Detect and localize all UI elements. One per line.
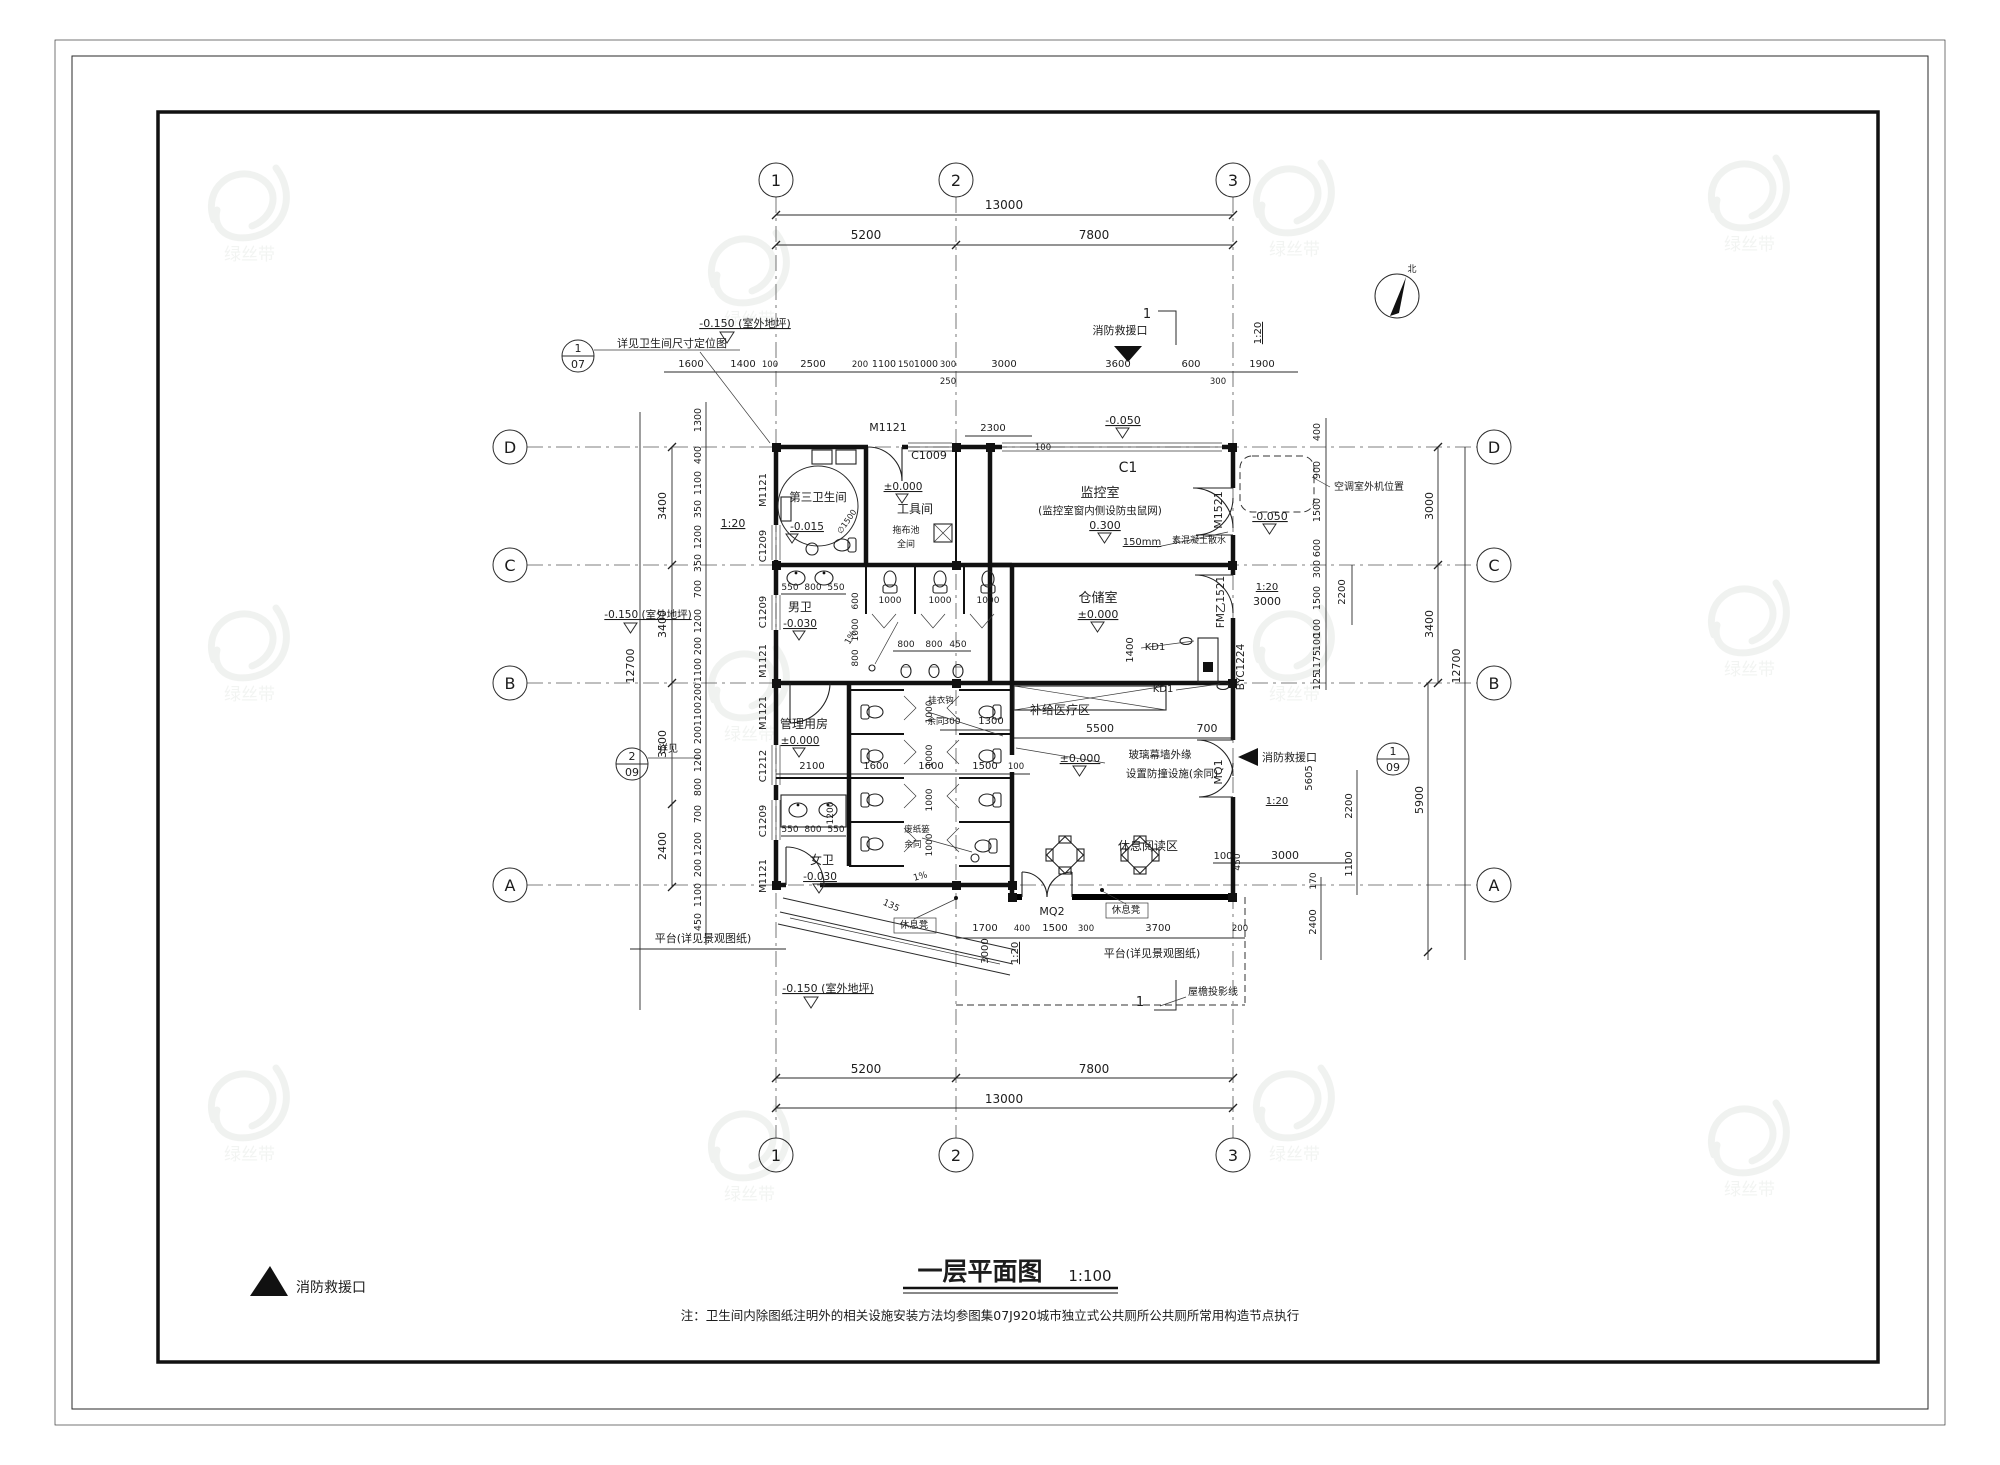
level-management: ±0.000 <box>781 735 820 747</box>
detail-1-07-note: 详见卫生间尺寸定位图 <box>617 336 727 350</box>
dim-right-450: 450 <box>1233 853 1243 870</box>
dim-top-sub: 250 <box>940 377 956 387</box>
detail-2-09-num: 2 <box>629 750 636 763</box>
dim-right-chain: 1500 <box>1312 498 1323 522</box>
level-outdoor-bottom: -0.150 (室外地坪) <box>782 981 874 995</box>
level--0050-right: -0.050 <box>1252 510 1287 523</box>
dim-urinal: 800 <box>897 640 914 650</box>
dim-right-chain: 600 <box>1312 539 1323 557</box>
dim-left-chain: 1100 <box>693 471 704 495</box>
dim-left-chain: 350 <box>693 554 704 572</box>
dim-right-3400: 3400 <box>1423 610 1436 638</box>
dim-top-chain: 600 <box>1181 359 1200 370</box>
dim-top-chain: 200 <box>852 360 868 370</box>
dim-women-stall: 1000 <box>925 744 935 767</box>
dim-left-3400a: 3400 <box>656 492 669 520</box>
dim-left-2400: 2400 <box>656 832 669 860</box>
grid-bubble-A-left: A <box>505 876 516 895</box>
dim-2300: 2300 <box>980 423 1005 434</box>
wastebin-note-1: 废纸篓 <box>904 824 930 835</box>
dim-right-3000: 3000 <box>1423 492 1436 520</box>
level-outdoor-top: -0.150 (室外地坪) <box>699 316 791 330</box>
dim-platform: 400 <box>1014 924 1030 934</box>
door-M1521: M1521 <box>1212 491 1225 529</box>
dim-1300: 1300 <box>978 716 1003 727</box>
platform-note-right: 平台(详见景观图纸) <box>1104 946 1201 960</box>
drawing-title: 一层平面图 <box>917 1257 1042 1286</box>
dim-men-stall: 1000 <box>879 596 902 606</box>
dim-bottom-total: 13000 <box>985 1092 1023 1106</box>
dim-right-2200a: 2200 <box>1337 579 1348 604</box>
grid-bubble-2-bottom: 2 <box>951 1146 961 1165</box>
wall-tag: C1209 <box>758 530 769 562</box>
dim-top-chain: 2500 <box>800 359 825 370</box>
dim-100: 100 <box>1035 443 1051 453</box>
dim-left-chain: 400 <box>693 446 704 464</box>
room-women: 女卫 <box>810 852 834 867</box>
dim-women-stall: 1000 <box>925 788 935 811</box>
dim-bottom-5200: 5200 <box>851 1062 882 1076</box>
drawing-scale: 1:100 <box>1068 1267 1111 1285</box>
dim-urinal: 800 <box>925 640 942 650</box>
dim-left-chain: 700 <box>693 805 704 823</box>
room-third-toilet: 第三卫生间 <box>789 490 847 504</box>
dim-men-sink: 550 <box>827 583 844 593</box>
dim-men-sink: 550 <box>781 583 798 593</box>
room-storage: 仓储室 <box>1078 590 1117 606</box>
floor-plan-sheet: { "content": { "title": "一层平面图", "scale"… <box>0 0 2000 1465</box>
dim-right-chain: 300 <box>1312 560 1323 578</box>
mop-sink-note-2: 全间 <box>897 538 915 550</box>
section-mark-1-top: 1 <box>1143 307 1151 322</box>
dim-right-1100: 1100 <box>1344 851 1355 876</box>
dim-top-7800: 7800 <box>1079 228 1110 242</box>
dim-top-chain: 1600 <box>678 359 703 370</box>
dim-hall-100: 100 <box>1213 851 1232 862</box>
dim-left-chain: 1200 <box>693 525 704 549</box>
level-women: -0.030 <box>803 871 837 883</box>
dim-top-chain: 1400 <box>730 359 755 370</box>
window-BYC1224: BYC1224 <box>1235 643 1247 690</box>
grid-bubble-B-left: B <box>505 674 516 693</box>
wall-tag: C1212 <box>758 750 769 782</box>
dim-women-sink: 800 <box>804 825 821 835</box>
slope-1-20-top: 1:20 <box>1253 322 1264 344</box>
apron-150mm: 150mm <box>1123 537 1162 548</box>
dim-hall-3000: 3000 <box>1271 849 1299 862</box>
dim-right-chain: 125 <box>1312 672 1323 690</box>
wastebin-note-2: 余同 <box>904 839 921 850</box>
detail-1-07-sheet: 07 <box>571 358 585 371</box>
bench-note-hall: 休息凳 <box>1112 904 1141 916</box>
door-FMZ1521: FM乙1521 <box>1215 576 1227 628</box>
dim-right-170: 170 <box>1309 872 1319 889</box>
apron-note: 素混凝土散水 <box>1172 534 1226 546</box>
room-supply-medical: 补给医疗区 <box>1030 703 1090 717</box>
dim-women-sink: 550 <box>827 825 844 835</box>
fire-rescue-top-label: 消防救援口 <box>1093 323 1148 337</box>
door-MQ2: MQ2 <box>1039 905 1064 918</box>
dim-ramp-135: 135 <box>881 898 901 914</box>
dim-left-chain: 1100 <box>693 883 704 907</box>
detail-1-09-sheet: 09 <box>1386 761 1400 774</box>
slope-1-20-mq1: 1:20 <box>1266 796 1288 807</box>
grid-bubble-D-left: D <box>504 438 516 457</box>
slope-1-20-ramp: 1:20 <box>1010 942 1021 964</box>
grid-bubble-1-bottom: 1 <box>771 1146 781 1165</box>
level-men: -0.030 <box>783 618 817 630</box>
floor-plan-drawing: 绿丝带 <box>0 0 2000 1465</box>
grid-axes <box>493 163 1511 1172</box>
grid-bubble-C-right: C <box>1488 556 1499 575</box>
dim-platform: 3700 <box>1145 923 1170 934</box>
level-outdoor-left: -0.150 (室外地坪) <box>604 608 691 621</box>
grid-bubble-A-right: A <box>1489 876 1500 895</box>
level-tool: ±0.000 <box>884 481 923 493</box>
dim-bottom-7800: 7800 <box>1079 1062 1110 1076</box>
dim-left-chain: 1200 <box>693 832 704 856</box>
slope-1pct-ramp: 1% <box>912 870 929 883</box>
fire-rescue-legend-label: 消防救援口 <box>296 1280 366 1296</box>
dim-women-stall: 1000 <box>925 833 935 856</box>
dim-men-stall: 1000 <box>977 596 1000 606</box>
dim-platform: 1700 <box>972 923 997 934</box>
dim-men-v: 600 <box>851 592 861 609</box>
dim-mgmt-chain: 1500 <box>972 761 997 772</box>
dim-mgmt-chain: 100 <box>1008 762 1024 772</box>
grid-bubble-3-top: 3 <box>1228 171 1238 190</box>
dim-right-2400: 2400 <box>1308 909 1319 934</box>
dim-top-chain: 150 <box>898 360 914 370</box>
dim-left-chain: 1100 <box>693 702 704 726</box>
detail-1-09-num: 1 <box>1390 745 1397 758</box>
drawing-note: 注：卫生间内除图纸注明外的相关设施安装方法均参图集07J920城市独立式公共厕所… <box>681 1308 1299 1323</box>
coathook-note-1: 挂衣钩 <box>928 695 954 706</box>
room-management: 管理用房 <box>780 716 828 731</box>
dim-300: 300 <box>943 717 960 727</box>
dim-right-total: 12700 <box>1450 649 1463 684</box>
dim-700: 700 <box>1197 722 1218 735</box>
sheet-border <box>55 40 1945 1425</box>
wall-tag: M1121 <box>758 859 769 893</box>
room-monitor-note: (监控室窗内侧设防虫鼠网) <box>1038 504 1162 517</box>
device-KD1-a: KD1 <box>1145 642 1166 653</box>
wall-tag: M1121 <box>758 644 769 678</box>
north-arrow-icon <box>1375 274 1419 318</box>
dim-left-chain: 200 <box>693 683 704 701</box>
bench-note-ramp: 休息凳 <box>900 919 929 931</box>
dim-right-chain: 100 <box>1312 633 1323 651</box>
dim-right-chain: 1500 <box>1312 586 1323 610</box>
slope-1-20-ramp-east: 1:20 <box>1256 582 1278 593</box>
dim-right-chain: 1175 <box>1312 650 1323 674</box>
level-third-toilet: -0.015 <box>790 521 824 533</box>
slope-1-20-left: 1:20 <box>721 517 746 530</box>
dim-top-chain: 3600 <box>1105 359 1130 370</box>
dim-left-chain: 1100 <box>693 658 704 682</box>
device-KD1-b: KD1 <box>1153 684 1174 695</box>
grid-bubble-C-left: C <box>504 556 515 575</box>
dim-platform: 300 <box>1078 924 1094 934</box>
dim-right-chain: 400 <box>1312 423 1323 441</box>
wall-tag: C1209 <box>758 805 769 837</box>
fire-rescue-legend-icon <box>250 1266 288 1296</box>
dim-right-5900: 5900 <box>1413 786 1426 814</box>
window-C1009: C1009 <box>911 449 947 462</box>
dim-right-chain: 900 <box>1312 461 1323 479</box>
window-C1: C1 <box>1119 460 1138 476</box>
dim-platform: 1500 <box>1042 923 1067 934</box>
fire-rescue-right-label: 消防救援口 <box>1262 750 1317 764</box>
north-label: 北 <box>1407 264 1416 275</box>
dim-top-total: 13000 <box>985 198 1023 212</box>
detail-2-09-note: 详见 <box>658 742 678 755</box>
dim-ramp-east-3000: 3000 <box>1253 595 1281 608</box>
curtainwall-note-1: 玻璃幕墙外缘 <box>1129 748 1192 761</box>
dim-left-chain: 1200 <box>693 609 704 633</box>
room-men: 男卫 <box>788 600 812 614</box>
dim-urinal: 450 <box>949 640 966 650</box>
dim-left-chain: 350 <box>693 500 704 518</box>
dim-right-5605: 5605 <box>1304 765 1315 790</box>
grid-bubble-2-top: 2 <box>951 171 961 190</box>
dim-left-chain: 800 <box>693 778 704 796</box>
grid-bubble-D-right: D <box>1488 438 1500 457</box>
dim-top-chain: 3000 <box>991 359 1016 370</box>
dim-men-v: 800 <box>851 649 861 666</box>
labels-layer: 123123DCBADCBA13000520078001600140010025… <box>504 171 1500 1165</box>
dim-top-chain: 1100 <box>872 359 896 370</box>
dim-top-chain: 100 <box>762 360 778 370</box>
dim-left-chain: 1300 <box>693 408 704 432</box>
detail-1-07-num: 1 <box>575 342 582 355</box>
section-mark-bracket-top <box>1158 311 1176 345</box>
dim-platform-3000: 3000 <box>980 938 991 963</box>
dim-men-sink: 800 <box>804 583 821 593</box>
door-M1121-top: M1121 <box>869 421 907 434</box>
mop-sink-note-1: 拖布池 <box>892 524 919 536</box>
dim-women-sink: 550 <box>781 825 798 835</box>
dim-top-chain: 1000 <box>914 359 938 370</box>
dim-top-5200: 5200 <box>851 228 882 242</box>
fire-rescue-triangle-right <box>1238 748 1258 766</box>
detail-2-09-sheet: 09 <box>625 766 639 779</box>
dim-left-chain: 200 <box>693 637 704 655</box>
wall-tag: M1121 <box>758 473 769 507</box>
ac-unit-note: 空调室外机位置 <box>1334 480 1404 493</box>
wall-tag: M1121 <box>758 696 769 730</box>
dim-left-chain: 1200 <box>693 748 704 772</box>
eave-note: 屋檐投影线 <box>1188 985 1238 998</box>
title-block: 一层平面图 1:100 注：卫生间内除图纸注明外的相关设施安装方法均参图集07J… <box>296 1257 1299 1323</box>
level-monitor: 0.300 <box>1089 519 1121 532</box>
dim-men-stall: 1000 <box>929 596 952 606</box>
dim-top-chain: 300 <box>940 360 956 370</box>
room-rest-reading: 休息阅读区 <box>1118 838 1178 853</box>
section-mark-1-bottom: 1 <box>1136 995 1144 1010</box>
dim-left-chain: 450 <box>693 913 704 931</box>
dim-top-sub: 300 <box>1210 377 1226 387</box>
dim-left-chain: 200 <box>693 859 704 877</box>
dim-top-chain: 1900 <box>1249 359 1274 370</box>
level-storage: ±0.000 <box>1078 608 1119 621</box>
dim-mgmt-chain: 2100 <box>799 761 824 772</box>
dim-5500: 5500 <box>1086 722 1114 735</box>
wall-tag: C1209 <box>758 596 769 628</box>
grid-bubble-B-right: B <box>1489 674 1500 693</box>
dim-left-chain: 700 <box>693 580 704 598</box>
dim-left-chain: 200 <box>693 726 704 744</box>
room-tool: 工具间 <box>897 502 933 516</box>
grid-bubble-3-bottom: 3 <box>1228 1146 1238 1165</box>
dim-women-1200: 1200 <box>826 801 836 824</box>
grid-bubble-1-top: 1 <box>771 171 781 190</box>
level--0050-top: -0.050 <box>1105 414 1140 427</box>
dim-mgmt-chain: 1600 <box>863 761 888 772</box>
room-monitor: 监控室 <box>1080 485 1119 501</box>
dim-1400: 1400 <box>1125 637 1136 662</box>
annotation-symbols <box>250 274 1419 1296</box>
level-hall: ±0.000 <box>1060 752 1101 765</box>
curtainwall-note-2: 设置防撞设施(余同) <box>1126 767 1218 780</box>
coathook-note-2: 余同 <box>927 716 944 727</box>
dim-right-2200b: 2200 <box>1344 793 1355 818</box>
dim-left-total: 12700 <box>624 649 637 684</box>
platform-note-left: 平台(详见景观图纸) <box>655 931 752 945</box>
dim-platform: 200 <box>1232 924 1248 934</box>
